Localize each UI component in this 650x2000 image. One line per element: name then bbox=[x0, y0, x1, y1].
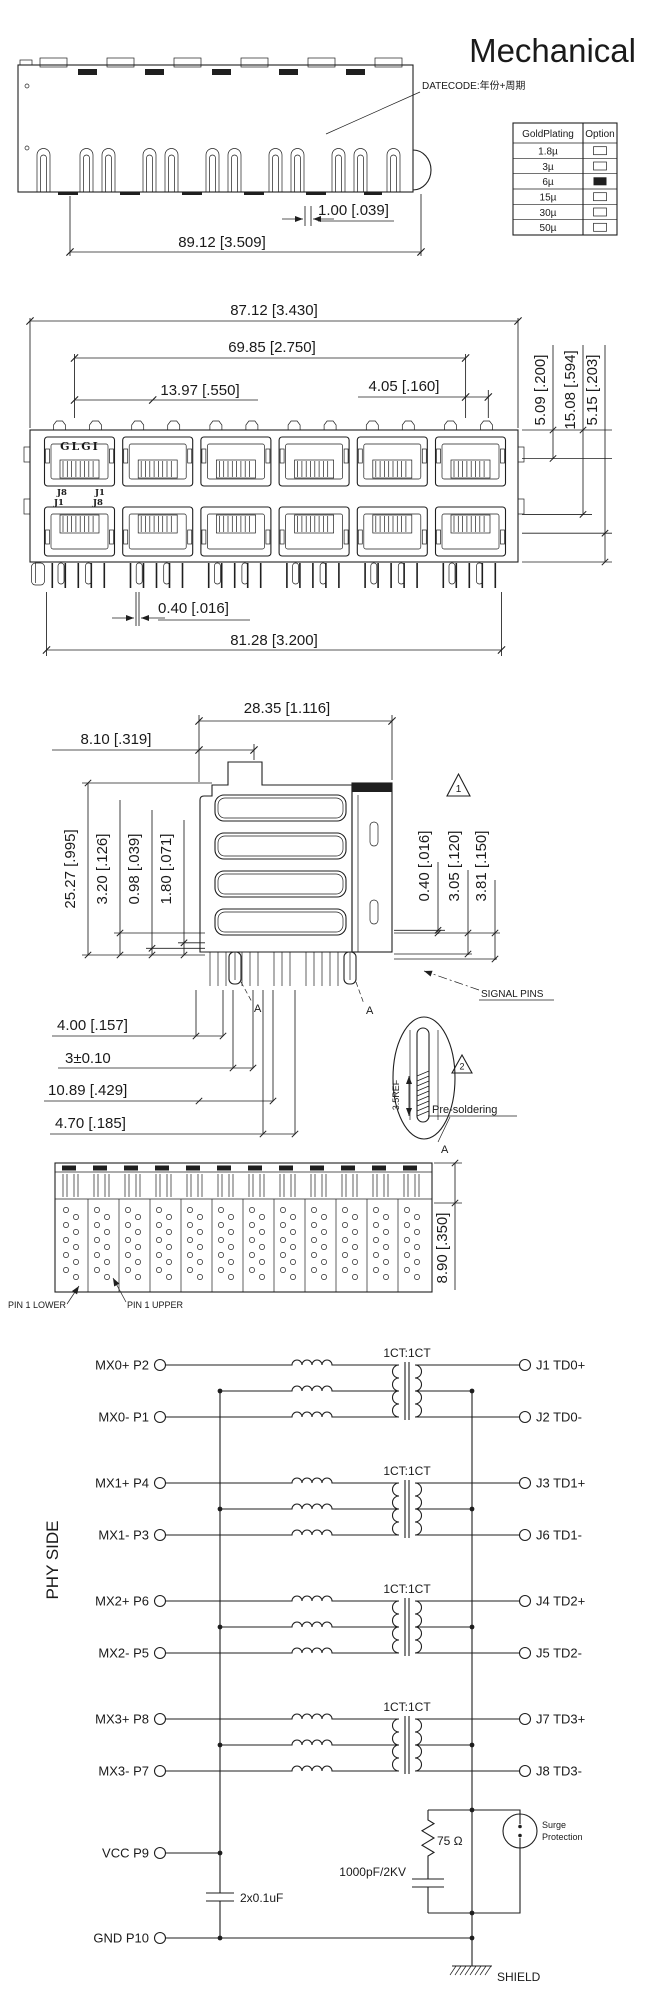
pin-label-out: J2 TD0- bbox=[536, 1410, 582, 1425]
pin1-upper-label: PIN 1 UPPER bbox=[127, 1300, 184, 1310]
dim-side-r2: 3.05 [.120] bbox=[446, 831, 463, 902]
pin-label-in: MX0- P1 bbox=[98, 1410, 149, 1425]
pin-label-upper-left: J8 bbox=[56, 488, 67, 498]
turns-ratio-label: 1CT:1CT bbox=[383, 1700, 431, 1714]
dim-top-width: 89.12 [3.509] bbox=[178, 234, 266, 251]
dim-front-pin-gap: 0.40 [.016] bbox=[158, 600, 229, 617]
option-checkbox bbox=[594, 208, 607, 216]
resistor-value: 75 Ω bbox=[437, 1834, 463, 1848]
table-header-goldplating: GoldPlating bbox=[522, 129, 574, 140]
pin-label-lower-left: J1 bbox=[53, 498, 64, 508]
pin-label-out: J1 TD0+ bbox=[536, 1358, 585, 1373]
table-cell: 15µ bbox=[540, 193, 557, 204]
section-a-label: A bbox=[254, 1003, 262, 1015]
pin-label-in: MX0+ P2 bbox=[95, 1358, 149, 1373]
pin-label-out: J5 TD2- bbox=[536, 1646, 582, 1661]
pin-label-out: J7 TD3+ bbox=[536, 1712, 585, 1727]
front-view: 87.12 [3.430] 69.85 [2.750] 13.97 [.550]… bbox=[24, 302, 612, 656]
engineering-drawing-page: Mechanical DATECODE:年份+周期 1.00 [.039] bbox=[0, 0, 650, 2000]
pin-label-upper-right: J1 bbox=[94, 488, 105, 498]
dim-side-b1: 4.00 [.157] bbox=[57, 1017, 128, 1034]
page-title: Mechanical bbox=[469, 32, 636, 69]
table-cell: 50µ bbox=[540, 223, 557, 234]
dim-front-r2: 15.08 [.594] bbox=[562, 350, 579, 429]
dim-bottom-height: 8.90 [.350] bbox=[434, 1213, 451, 1284]
datecode-note: DATECODE:年份+周期 bbox=[422, 79, 525, 92]
pin-label-in: MX3- P7 bbox=[98, 1764, 149, 1779]
dim-side-r1: 0.40 [.016] bbox=[416, 831, 433, 902]
pin-label-in: MX1+ P4 bbox=[95, 1476, 149, 1491]
turns-ratio-label: 1CT:1CT bbox=[383, 1464, 431, 1478]
phy-side-label: PHY SIDE bbox=[43, 1520, 62, 1599]
dim-side-latch: 8.10 [.319] bbox=[81, 731, 152, 748]
detail-ref-dim: 3.5REF bbox=[391, 1079, 401, 1110]
option-checkbox-selected bbox=[594, 177, 607, 185]
top-view: DATECODE:年份+周期 1.00 [.039] 89.12 [3.509] bbox=[18, 58, 525, 256]
shield-label: SHIELD bbox=[497, 1970, 541, 1984]
signal-pins-label: SIGNAL PINS bbox=[481, 989, 544, 1000]
pin1-lower-label: PIN 1 LOWER bbox=[8, 1300, 67, 1310]
schematic: PHY SIDE 1CT:1CT 1CT:1CT 1CT:1CT 1CT:1CT… bbox=[43, 1346, 585, 1984]
table-header-option: Option bbox=[585, 129, 614, 140]
ground-symbol-icon bbox=[450, 1966, 492, 1975]
option-checkbox bbox=[594, 162, 607, 170]
turns-ratio-label: 1CT:1CT bbox=[383, 1346, 431, 1360]
dim-side-r3: 3.81 [.150] bbox=[473, 831, 490, 902]
dim-side-b3: 10.89 [.429] bbox=[48, 1082, 127, 1099]
section-a-label: A bbox=[366, 1005, 374, 1017]
pin-label-out: J3 TD1+ bbox=[536, 1476, 585, 1491]
dim-front-tab-offset: 4.05 [.160] bbox=[369, 378, 440, 395]
option-checkbox bbox=[594, 147, 607, 155]
side-view: 28.35 [1.116] 8.10 [.319] A A bbox=[44, 700, 554, 1156]
table-cell: 30µ bbox=[540, 208, 557, 219]
dim-side-depth: 28.35 [1.116] bbox=[244, 700, 330, 717]
pin-label-out: J6 TD1- bbox=[536, 1528, 582, 1543]
bottom-view: 8.90 [.350] PIN 1 LOWER PIN 1 UPPER bbox=[8, 1160, 462, 1310]
dim-front-pin-span: 81.28 [3.200] bbox=[230, 632, 318, 649]
dim-front-pitch: 13.97 [.550] bbox=[160, 382, 239, 399]
pin-label-in: MX2- P5 bbox=[98, 1646, 149, 1661]
pin-label-in: MX1- P3 bbox=[98, 1528, 149, 1543]
pin-label-out: J8 TD3- bbox=[536, 1764, 582, 1779]
gold-plating-table: GoldPlating Option 1.8µ 3µ 6µ 15µ 30µ 50… bbox=[513, 123, 617, 235]
option-checkbox bbox=[594, 193, 607, 201]
table-cell: 6µ bbox=[542, 177, 554, 188]
table-cell: 1.8µ bbox=[538, 147, 558, 158]
dim-side-h2: 3.20 [.126] bbox=[94, 834, 111, 905]
dim-front-span: 69.85 [2.750] bbox=[228, 339, 316, 356]
dim-front-overall: 87.12 [3.430] bbox=[230, 302, 318, 319]
dim-side-h1: 25.27 [.995] bbox=[62, 829, 79, 908]
dim-side-b2: 3±0.10 bbox=[65, 1050, 111, 1067]
dim-top-tab: 1.00 [.039] bbox=[318, 202, 389, 219]
surge-label-line1: Surge bbox=[542, 1820, 566, 1830]
gnd-pin-label: GND P10 bbox=[93, 1931, 149, 1946]
pin-label-in: MX3+ P8 bbox=[95, 1712, 149, 1727]
option-checkbox bbox=[594, 223, 607, 231]
vcc-pin-label: VCC P9 bbox=[102, 1846, 149, 1861]
section-a-label: A bbox=[441, 1144, 449, 1156]
warning-number: 1 bbox=[456, 784, 462, 795]
dim-side-h4: 1.80 [.071] bbox=[158, 834, 175, 905]
table-cell: 3µ bbox=[542, 162, 554, 173]
dim-front-r3: 5.15 [.203] bbox=[584, 355, 601, 426]
bypass-cap-value: 2x0.1uF bbox=[240, 1891, 283, 1905]
presolder-label: Pre-soldering bbox=[432, 1104, 497, 1116]
turns-ratio-label: 1CT:1CT bbox=[383, 1582, 431, 1596]
brand-logo: GLGI bbox=[60, 440, 100, 453]
drawing-canvas: Mechanical DATECODE:年份+周期 1.00 [.039] bbox=[0, 0, 650, 2000]
dim-side-b4: 4.70 [.185] bbox=[55, 1115, 126, 1132]
pin-label-out: J4 TD2+ bbox=[536, 1594, 585, 1609]
hv-cap-value: 1000pF/2KV bbox=[339, 1865, 406, 1879]
warning-number: 2 bbox=[459, 1062, 464, 1072]
pin-label-in: MX2+ P6 bbox=[95, 1594, 149, 1609]
surge-label-line2: Protection bbox=[542, 1832, 583, 1842]
dim-front-r1: 5.09 [.200] bbox=[532, 355, 549, 426]
dim-side-h3: 0.98 [.039] bbox=[126, 834, 143, 905]
pin-label-lower-right: J8 bbox=[92, 498, 103, 508]
